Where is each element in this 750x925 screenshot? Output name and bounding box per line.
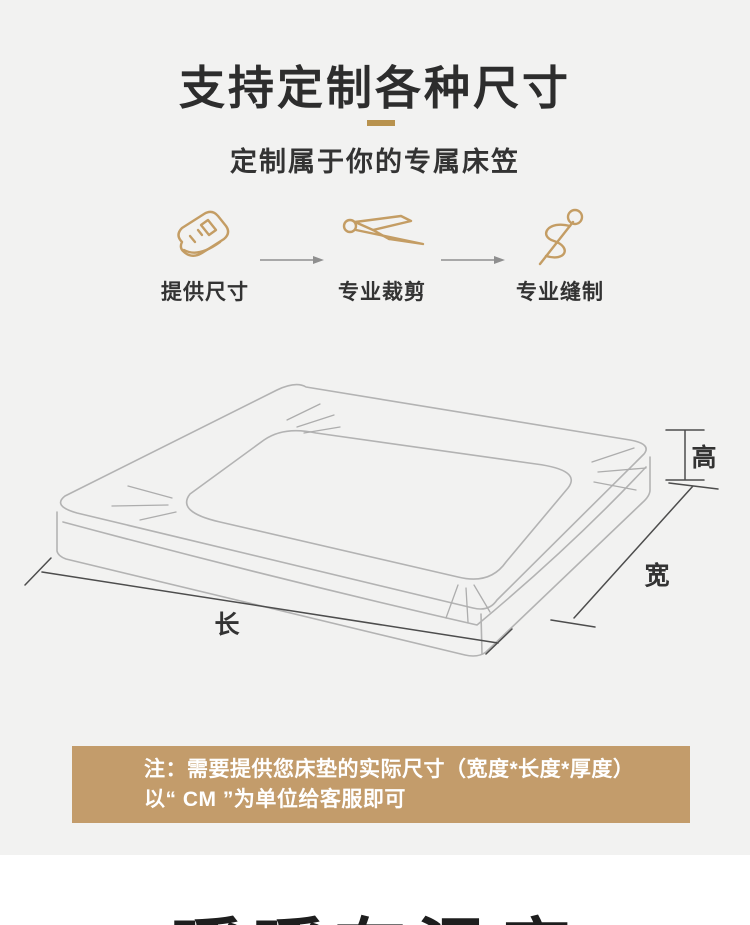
step-label: 专业缝制: [516, 276, 604, 306]
step-label: 专业裁剪: [338, 276, 426, 306]
needle-thread-icon: [530, 206, 590, 268]
scissors-icon: [339, 206, 425, 268]
process-step-sewing: 专业缝制: [485, 206, 635, 306]
next-section: 暖暖有温度: [0, 855, 750, 925]
process-step-cutting: 专业裁剪: [307, 206, 457, 306]
mattress-diagram: 高 宽 长: [0, 370, 750, 680]
process-step-provide-size: 提供尺寸: [130, 206, 280, 306]
step-label: 提供尺寸: [161, 276, 249, 306]
page-subtitle: 定制属于你的专属床笠: [0, 140, 750, 179]
note-line-1: 注：需要提供您床垫的实际尺寸（宽度*长度*厚度）: [144, 755, 690, 785]
width-dimension: 宽: [551, 483, 718, 627]
custom-size-note-banner: 注：需要提供您床垫的实际尺寸（宽度*长度*厚度） 以“ CM ”为单位给客服即可: [72, 746, 690, 823]
length-label: 长: [214, 611, 240, 639]
height-dimension: 高: [666, 430, 717, 480]
note-line-2: 以“ CM ”为单位给客服即可: [144, 785, 690, 815]
width-label: 宽: [644, 561, 669, 590]
tape-measure-icon: [168, 206, 242, 268]
product-detail-page: 支持定制各种尺寸 定制属于你的专属床笠 提供尺寸: [0, 0, 750, 925]
title-divider: [367, 120, 395, 126]
height-label: 高: [691, 443, 716, 472]
page-title: 支持定制各种尺寸: [0, 52, 750, 118]
next-section-title: 暖暖有温度: [0, 893, 750, 925]
